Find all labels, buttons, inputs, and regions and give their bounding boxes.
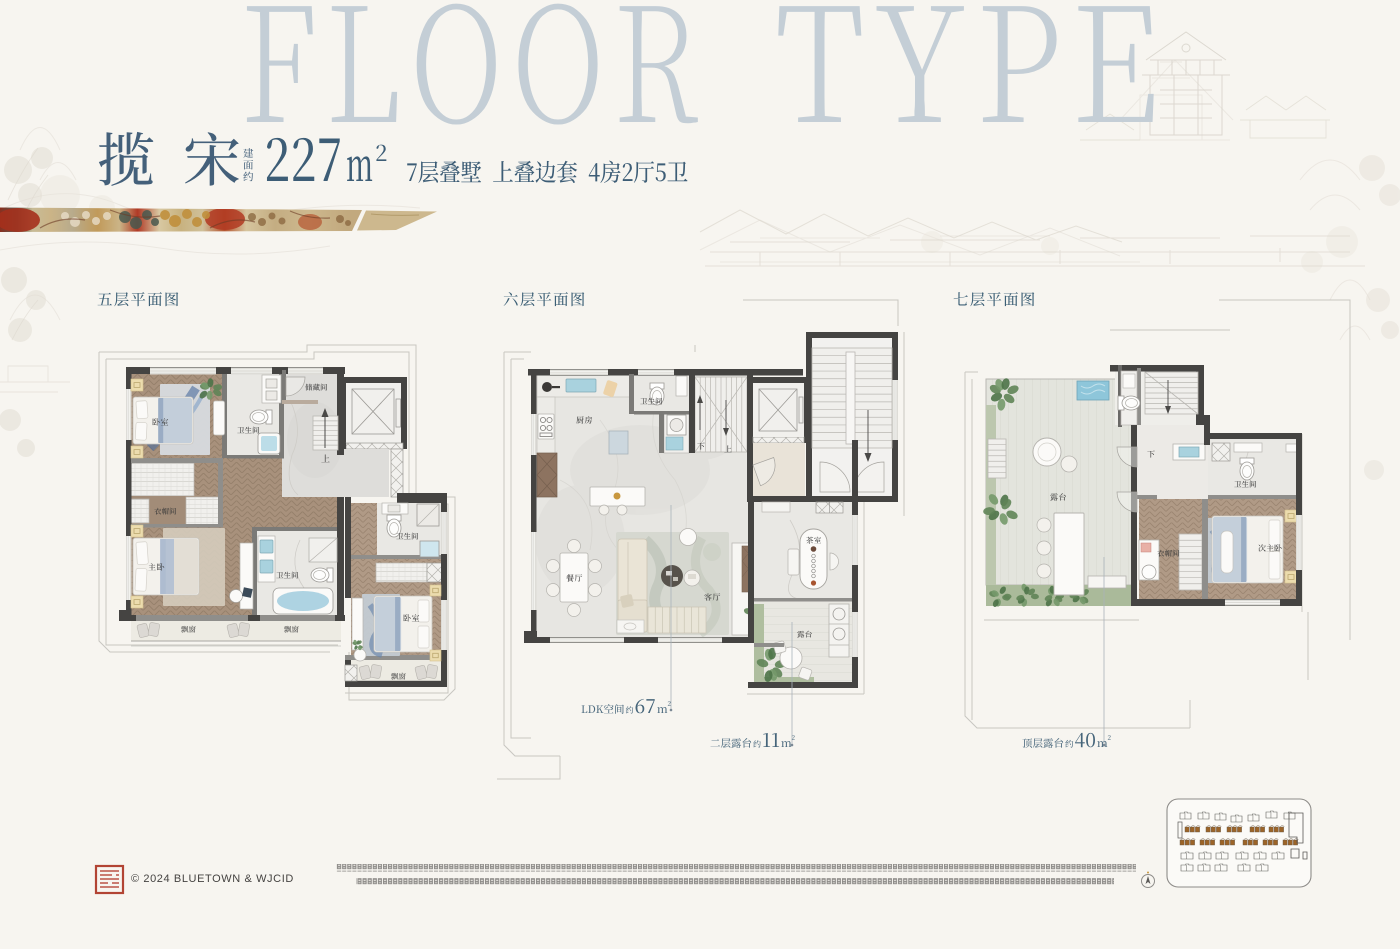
svg-text:© 2024 BLUETOWN & WJCID: © 2024 BLUETOWN & WJCID (131, 873, 294, 885)
